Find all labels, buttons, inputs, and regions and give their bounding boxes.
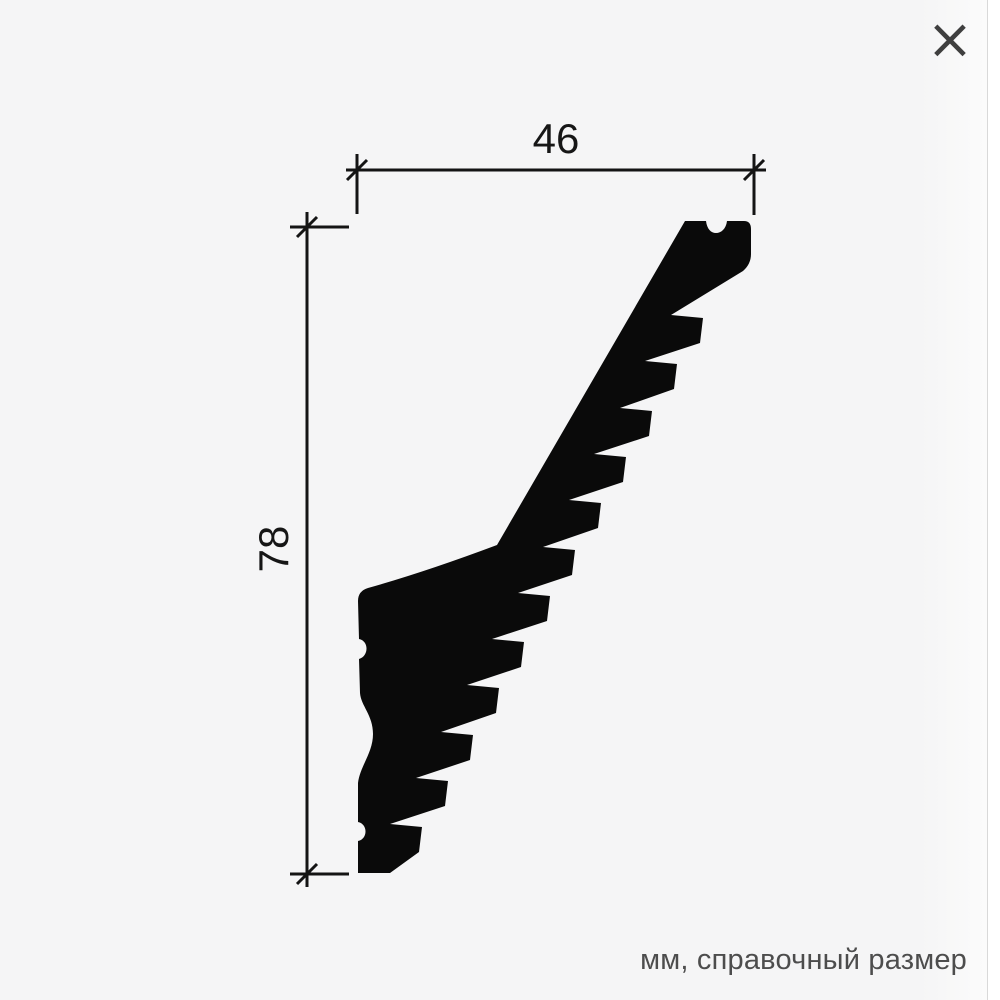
width-dimension [346,154,766,215]
molding-profile-silhouette [358,221,751,873]
width-dim-label: 46 [533,115,580,162]
technical-drawing: 46 78 [0,0,1000,1000]
image-viewer-overlay: 46 78 × мм, справочный размер [0,0,1000,1000]
right-edge-strip [987,0,1000,1000]
height-dim-label: 78 [250,526,297,573]
height-dimension [290,212,349,887]
units-footnote: мм, справочный размер [640,944,967,977]
close-button[interactable]: × [926,14,974,66]
close-icon: × [927,12,974,68]
